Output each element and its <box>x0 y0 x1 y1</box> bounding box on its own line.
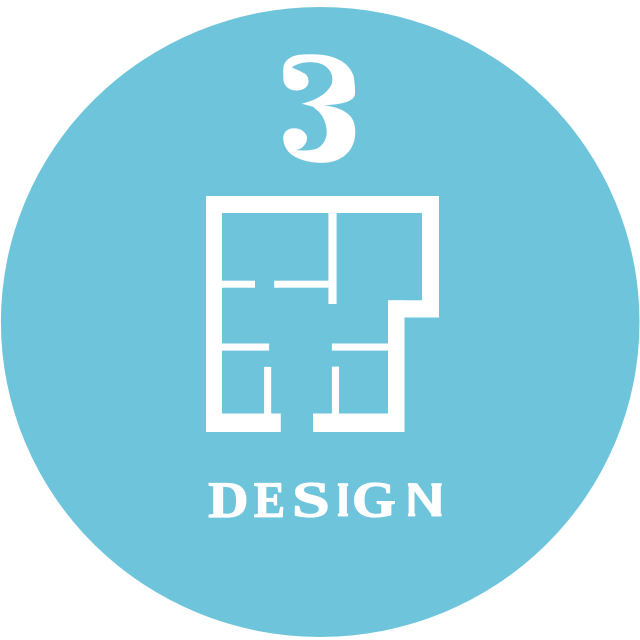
svg-text:D: D <box>208 471 248 528</box>
svg-text:S: S <box>292 472 330 529</box>
svg-text:E: E <box>254 471 285 528</box>
svg-text:G: G <box>352 471 396 528</box>
